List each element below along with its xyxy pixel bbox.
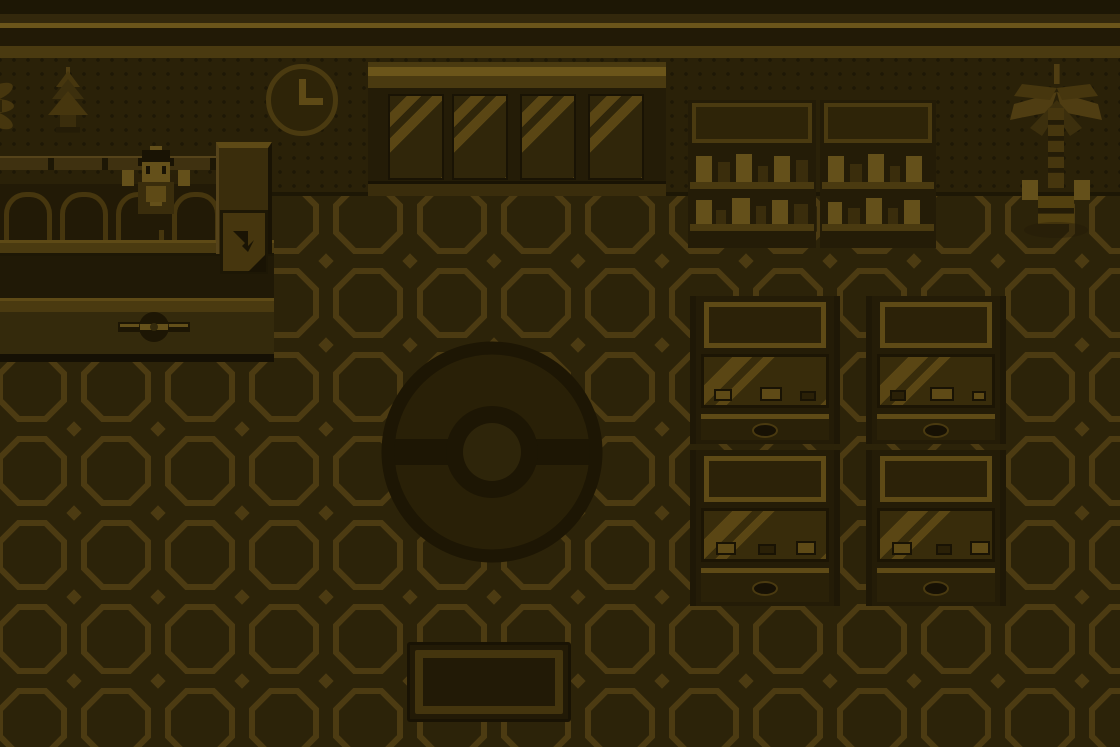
floor-tile bbox=[1005, 520, 1075, 590]
floor-tile-inner bbox=[3, 526, 61, 584]
floor-tile bbox=[921, 688, 991, 747]
display-case bbox=[866, 296, 1006, 444]
display-case bbox=[866, 450, 1006, 606]
floor-tile-inner bbox=[339, 694, 397, 747]
display-case-glass bbox=[877, 508, 995, 562]
floor-tile-inner bbox=[87, 610, 145, 668]
counter-note bbox=[220, 210, 268, 274]
floor-tile-inner bbox=[255, 694, 313, 747]
floor-tile bbox=[837, 604, 907, 674]
floor-corner-diamond bbox=[654, 421, 669, 436]
floor-corner-diamond bbox=[234, 505, 249, 520]
floor-tile bbox=[1005, 436, 1075, 506]
floor-tile-inner bbox=[591, 610, 649, 668]
floor-corner-diamond bbox=[234, 421, 249, 436]
floor-tile bbox=[753, 604, 823, 674]
floor-tile bbox=[0, 352, 67, 422]
palm-plant-right bbox=[1006, 64, 1106, 248]
floor-tile bbox=[249, 604, 319, 674]
floor-tile-inner bbox=[1011, 526, 1069, 584]
wall-trim-lower bbox=[0, 46, 1120, 58]
floor-tile-inner bbox=[87, 442, 145, 500]
floor-corner-diamond bbox=[318, 505, 333, 520]
floor-tile bbox=[333, 268, 403, 338]
drawer-knob bbox=[752, 423, 778, 438]
doormat bbox=[407, 642, 571, 722]
shelf-board bbox=[690, 224, 814, 231]
floor-tile-inner bbox=[1095, 526, 1120, 584]
note-arrow-icon bbox=[230, 225, 260, 255]
wall-trim-dark bbox=[0, 28, 1120, 46]
floor-corner-diamond bbox=[66, 673, 81, 688]
floor-corner-diamond bbox=[990, 673, 1005, 688]
shelf-board bbox=[822, 182, 934, 189]
floor-tile-inner bbox=[171, 526, 229, 584]
floor-tile bbox=[0, 688, 67, 747]
shelf-goods-row bbox=[820, 191, 936, 224]
floor-tile-inner bbox=[255, 610, 313, 668]
floor-corner-diamond bbox=[318, 421, 333, 436]
floor-corner-diamond bbox=[486, 253, 501, 268]
floor-tile-inner bbox=[3, 694, 61, 747]
floor-corner-diamond bbox=[486, 589, 501, 604]
floor-corner-diamond bbox=[318, 337, 333, 352]
floor-tile-inner bbox=[1095, 358, 1120, 416]
floor-corner-diamond bbox=[654, 253, 669, 268]
floor-tile bbox=[1005, 688, 1075, 747]
floor-corner-diamond bbox=[66, 589, 81, 604]
floor-tile-inner bbox=[927, 610, 985, 668]
floor-corner-diamond bbox=[234, 673, 249, 688]
floor-corner-diamond bbox=[402, 589, 417, 604]
floor-tile bbox=[1005, 352, 1075, 422]
floor-corner-diamond bbox=[1074, 589, 1089, 604]
floor-tile bbox=[81, 352, 151, 422]
floor-tile bbox=[669, 604, 739, 674]
display-case-glass bbox=[701, 508, 829, 562]
display-case-drawer bbox=[701, 568, 829, 602]
floor-tile bbox=[81, 436, 151, 506]
drawer-knob bbox=[923, 423, 949, 438]
game-scene[interactable] bbox=[0, 0, 1120, 747]
floor-corner-diamond bbox=[1074, 505, 1089, 520]
floor-tile bbox=[0, 604, 67, 674]
floor-tile bbox=[333, 688, 403, 747]
window-pane bbox=[388, 94, 444, 180]
floor-corner-diamond bbox=[1074, 253, 1089, 268]
wall-shelf bbox=[688, 100, 816, 248]
floor-tile bbox=[1089, 688, 1120, 747]
display-case-sign bbox=[704, 302, 826, 348]
window-pane bbox=[588, 94, 644, 180]
floor-tile bbox=[1089, 520, 1120, 590]
floor-corner-diamond bbox=[234, 589, 249, 604]
floor-tile bbox=[249, 352, 319, 422]
floor-corner-diamond bbox=[906, 253, 921, 268]
shop-clerk bbox=[122, 146, 190, 234]
floor-tile-inner bbox=[507, 274, 565, 332]
floor-tile-inner bbox=[171, 442, 229, 500]
floor-tile bbox=[0, 520, 67, 590]
floor-tile bbox=[165, 688, 235, 747]
drawer-knob bbox=[752, 581, 778, 596]
potted-plant-left bbox=[44, 66, 92, 136]
floor-tile bbox=[585, 604, 655, 674]
floor-tile-inner bbox=[423, 274, 481, 332]
display-case-drawer bbox=[877, 568, 995, 602]
display-case-drawer bbox=[701, 414, 829, 440]
window bbox=[368, 62, 666, 196]
floor-corner-diamond bbox=[66, 421, 81, 436]
window-sill bbox=[368, 181, 666, 196]
floor-corner-diamond bbox=[150, 589, 165, 604]
floor-tile-inner bbox=[87, 526, 145, 584]
floor-tile-inner bbox=[339, 610, 397, 668]
floor-corner-diamond bbox=[738, 253, 753, 268]
floor-tile-inner bbox=[675, 610, 733, 668]
floor-tile-inner bbox=[591, 694, 649, 747]
floor-tile bbox=[837, 688, 907, 747]
wall-trim-upper bbox=[0, 14, 1120, 23]
floor-corner-diamond bbox=[906, 673, 921, 688]
shelf-board bbox=[690, 182, 814, 189]
doormat-frame bbox=[415, 650, 563, 714]
window-pane bbox=[452, 94, 508, 180]
floor-corner-diamond bbox=[318, 673, 333, 688]
potted-plant-left-edge bbox=[0, 78, 34, 132]
floor-tile bbox=[669, 688, 739, 747]
floor-corner-diamond bbox=[738, 673, 753, 688]
floor-corner-diamond bbox=[822, 673, 837, 688]
floor-corner-diamond bbox=[150, 505, 165, 520]
shelf-board bbox=[822, 224, 934, 231]
floor-corner-diamond bbox=[318, 253, 333, 268]
counter-arch-panel bbox=[60, 192, 108, 240]
floor-corner-diamond bbox=[150, 673, 165, 688]
floor-tile bbox=[165, 352, 235, 422]
floor-corner-diamond bbox=[990, 253, 1005, 268]
floor-corner-diamond bbox=[654, 673, 669, 688]
wall-shelf bbox=[820, 100, 936, 248]
floor-tile bbox=[165, 604, 235, 674]
window-lintel-highlight bbox=[368, 67, 666, 76]
floor-tile-inner bbox=[423, 190, 481, 248]
floor-tile-inner bbox=[843, 610, 901, 668]
floor-tile-inner bbox=[3, 442, 61, 500]
drawer-knob bbox=[923, 581, 949, 596]
shelf-sign-panel bbox=[824, 103, 932, 143]
floor-tile-inner bbox=[1011, 358, 1069, 416]
floor-tile bbox=[417, 268, 487, 338]
floor-tile-inner bbox=[87, 358, 145, 416]
floor-tile-inner bbox=[759, 694, 817, 747]
floor-tile bbox=[165, 520, 235, 590]
floor-corner-diamond bbox=[654, 505, 669, 520]
note-fold-corner bbox=[248, 254, 266, 272]
floor-tile bbox=[81, 688, 151, 747]
display-case-glass bbox=[877, 354, 995, 408]
floor-tile bbox=[249, 436, 319, 506]
floor-corner-diamond bbox=[402, 253, 417, 268]
counter-shadow bbox=[0, 354, 274, 362]
floor-tile bbox=[1089, 352, 1120, 422]
floor-tile-inner bbox=[255, 358, 313, 416]
floor-corner-diamond bbox=[318, 589, 333, 604]
floor-tile-inner bbox=[1095, 442, 1120, 500]
floor-tile-inner bbox=[255, 526, 313, 584]
floor-tile bbox=[1089, 604, 1120, 674]
floor-tile bbox=[0, 436, 67, 506]
counter-arch-panel bbox=[4, 192, 52, 240]
display-case-glass bbox=[701, 354, 829, 408]
display-case-sign bbox=[880, 456, 992, 502]
floor-tile-inner bbox=[507, 190, 565, 248]
floor-tile bbox=[1089, 436, 1120, 506]
floor-corner-diamond bbox=[570, 589, 585, 604]
shelf-goods-row bbox=[820, 148, 936, 182]
floor-corner-diamond bbox=[654, 589, 669, 604]
floor-tile bbox=[1089, 268, 1120, 338]
floor-tile-inner bbox=[1095, 610, 1120, 668]
floor-tile-inner bbox=[171, 694, 229, 747]
floor-tile-inner bbox=[87, 694, 145, 747]
floor-tile bbox=[81, 520, 151, 590]
floor-tile bbox=[921, 604, 991, 674]
floor-corner-diamond bbox=[1074, 337, 1089, 352]
floor-tile-inner bbox=[171, 358, 229, 416]
ceiling-strip bbox=[0, 0, 1120, 14]
floor-tile-inner bbox=[1011, 694, 1069, 747]
clock-hour-hand bbox=[302, 98, 323, 105]
floor-tile-inner bbox=[171, 610, 229, 668]
shelf-sign-panel bbox=[692, 103, 812, 143]
winged-pokeball-emblem bbox=[112, 304, 196, 352]
display-case bbox=[690, 296, 840, 444]
display-case-sign bbox=[880, 302, 992, 348]
display-case-drawer bbox=[877, 414, 995, 440]
pokeball-floor-emblem bbox=[380, 340, 604, 564]
display-case bbox=[690, 450, 840, 606]
floor-tile bbox=[1005, 604, 1075, 674]
floor-tile-inner bbox=[1011, 274, 1069, 332]
floor-tile-inner bbox=[1011, 610, 1069, 668]
floor-tile bbox=[249, 688, 319, 747]
floor-tile-inner bbox=[3, 358, 61, 416]
floor-tile-inner bbox=[339, 274, 397, 332]
floor-corner-diamond bbox=[570, 253, 585, 268]
floor-tile bbox=[333, 604, 403, 674]
floor-corner-diamond bbox=[570, 673, 585, 688]
floor-tile bbox=[249, 520, 319, 590]
floor-tile-inner bbox=[927, 694, 985, 747]
floor-corner-diamond bbox=[654, 337, 669, 352]
floor-corner-diamond bbox=[1074, 421, 1089, 436]
floor-tile bbox=[501, 268, 571, 338]
floor-tile bbox=[585, 268, 655, 338]
floor-tile-inner bbox=[1095, 274, 1120, 332]
floor-tile-inner bbox=[1011, 442, 1069, 500]
floor-tile-inner bbox=[591, 274, 649, 332]
display-case-sign bbox=[704, 456, 826, 502]
floor-tile bbox=[1005, 268, 1075, 338]
floor-tile-inner bbox=[675, 694, 733, 747]
floor-corner-diamond bbox=[150, 421, 165, 436]
floor-tile-inner bbox=[759, 610, 817, 668]
shelf-goods-row bbox=[688, 191, 816, 224]
floor-tile bbox=[585, 688, 655, 747]
floor-tile-inner bbox=[255, 442, 313, 500]
shelf-goods-row bbox=[688, 148, 816, 182]
floor-tile-inner bbox=[843, 694, 901, 747]
window-lintel bbox=[368, 62, 666, 88]
floor-corner-diamond bbox=[822, 253, 837, 268]
floor-tile bbox=[165, 436, 235, 506]
window-pane bbox=[520, 94, 576, 180]
floor-corner-diamond bbox=[66, 505, 81, 520]
floor-tile bbox=[81, 604, 151, 674]
floor-tile-inner bbox=[591, 190, 649, 248]
floor-tile-inner bbox=[1095, 694, 1120, 747]
floor-corner-diamond bbox=[1074, 673, 1089, 688]
floor-tile-inner bbox=[339, 190, 397, 248]
floor-tile-inner bbox=[3, 610, 61, 668]
wall-clock bbox=[266, 64, 338, 136]
floor-tile bbox=[753, 688, 823, 747]
counter-front-face bbox=[0, 312, 274, 354]
